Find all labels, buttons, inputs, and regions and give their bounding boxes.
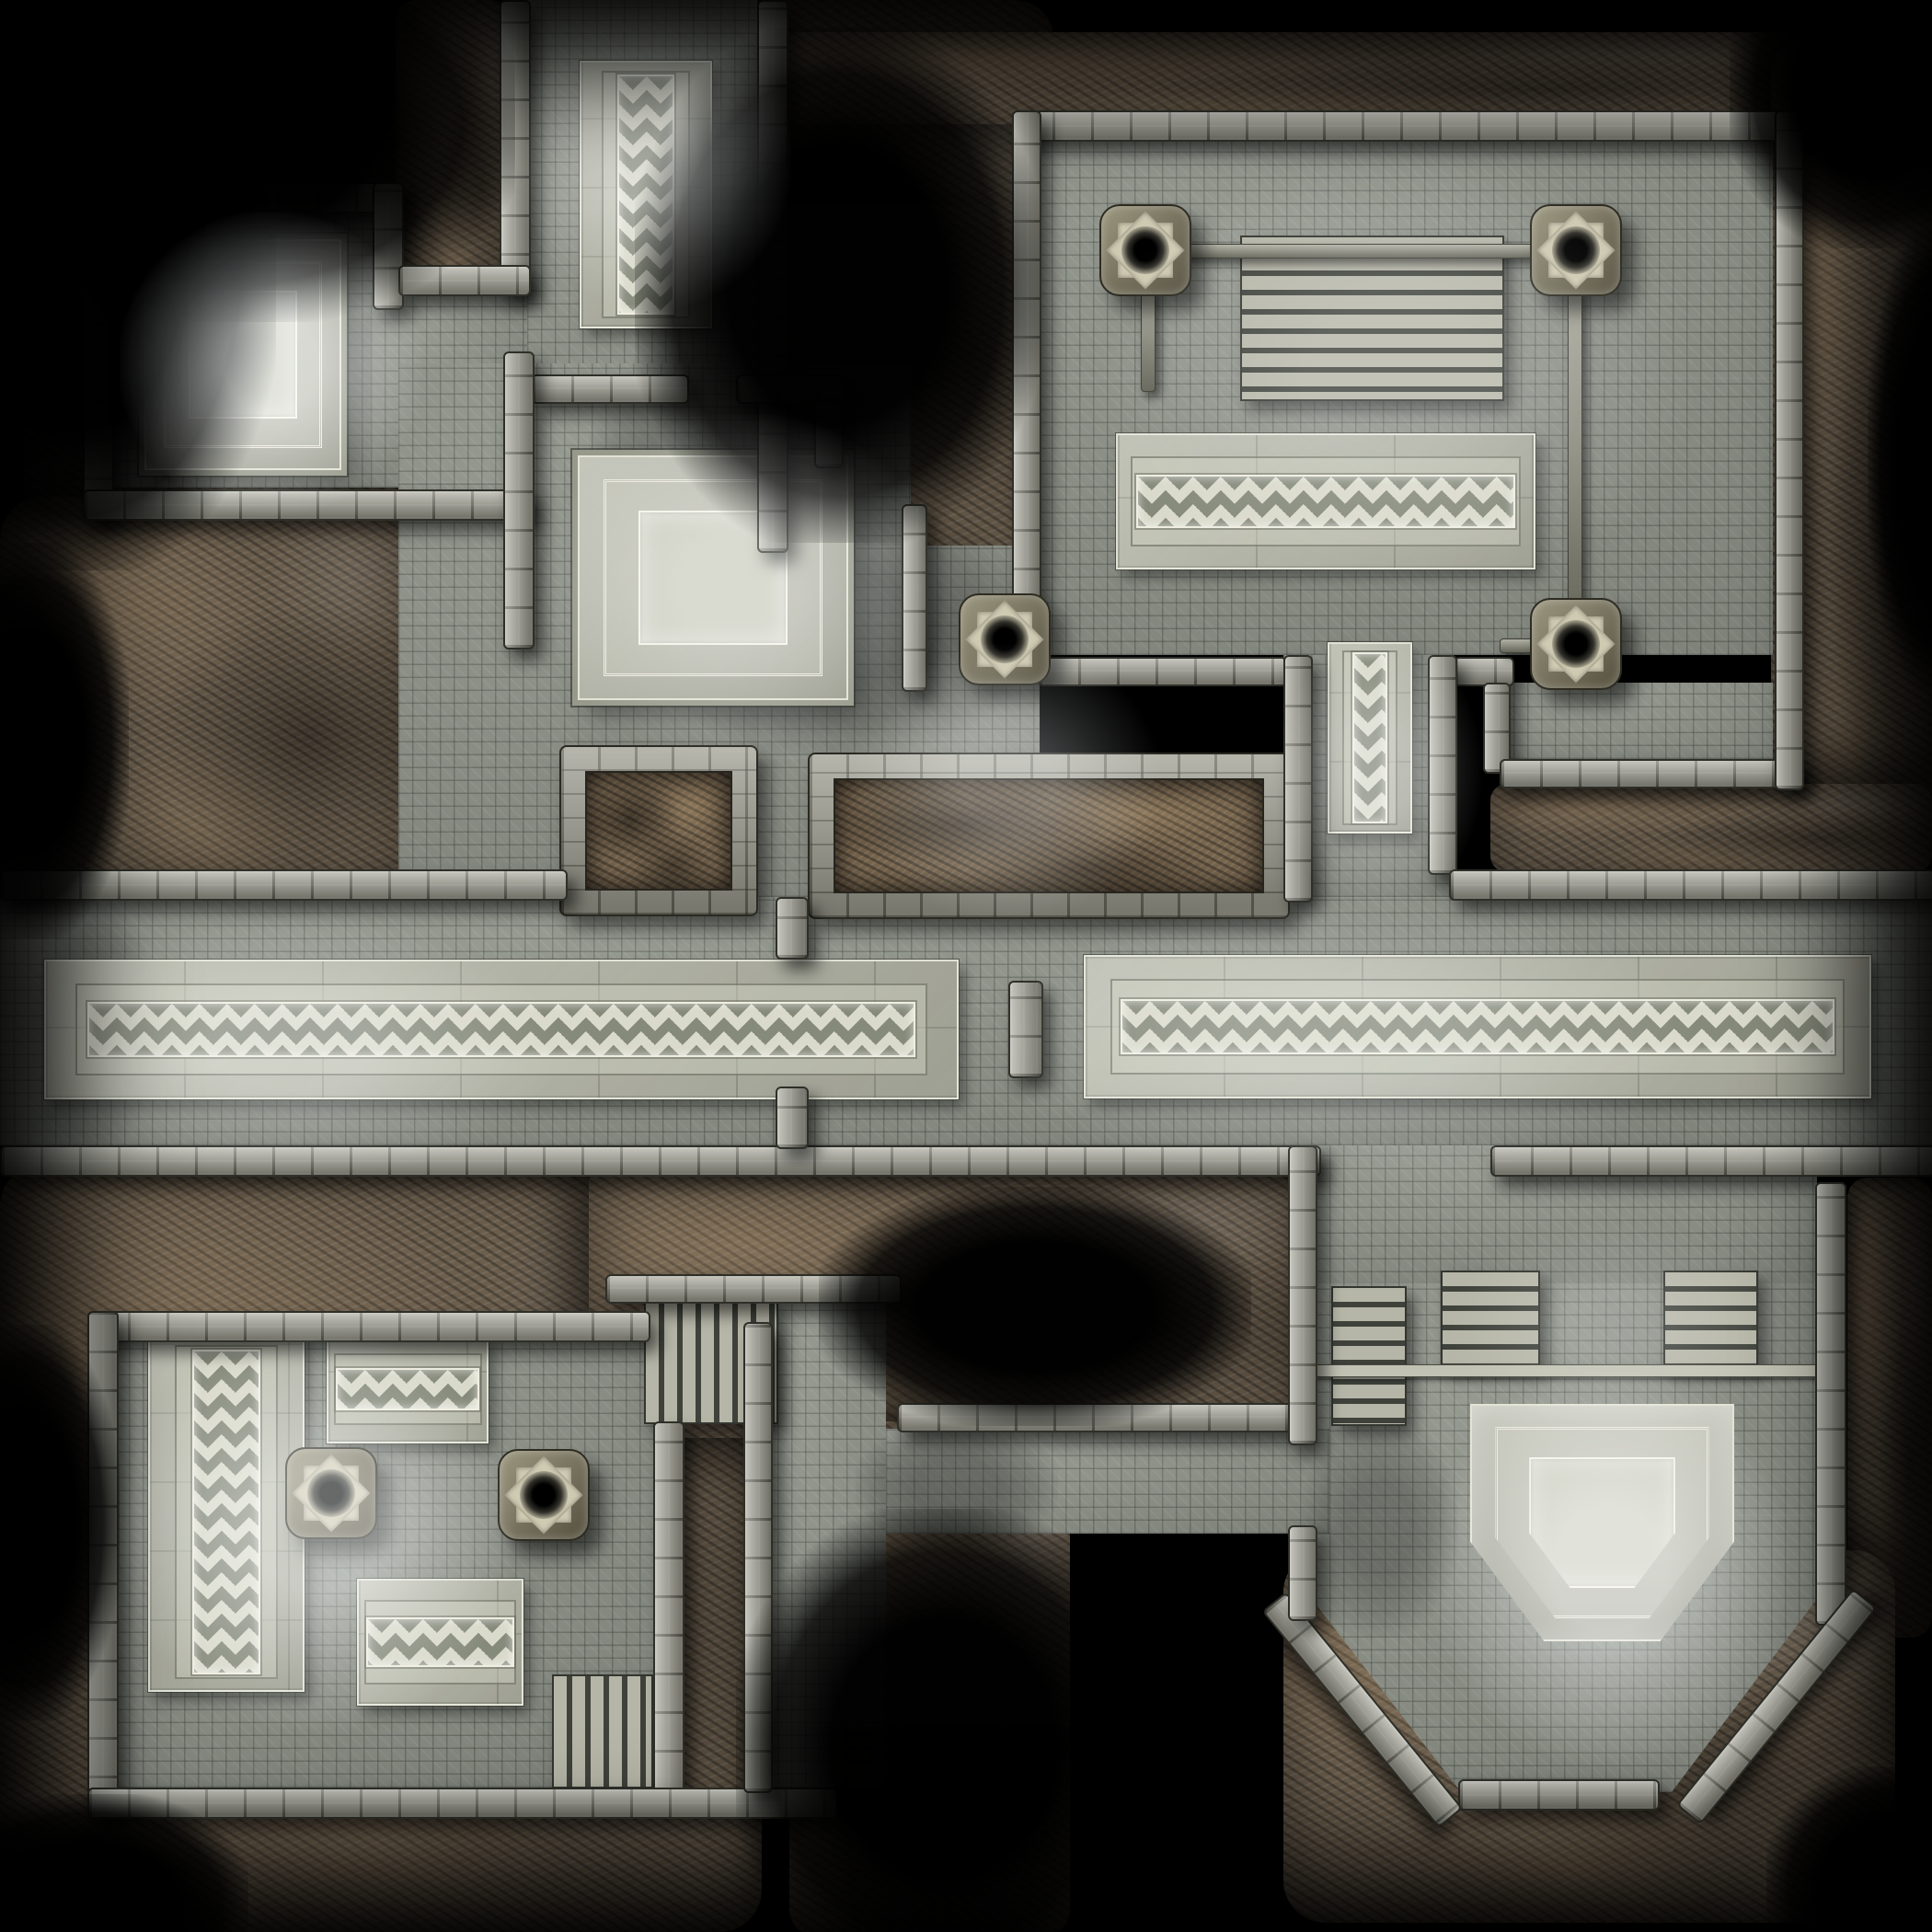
wall-junction-east bbox=[902, 504, 927, 692]
rug-room-topright-pattern bbox=[1136, 475, 1514, 528]
pit-center-rock bbox=[834, 778, 1264, 893]
wall-topright-west bbox=[1012, 110, 1041, 611]
wall-bottomright-west-lower bbox=[1288, 1525, 1317, 1621]
floor-room-topright-lower bbox=[1500, 683, 1773, 759]
wall-centerleft-north-west bbox=[531, 374, 689, 404]
dungeon-map[interactable] bbox=[0, 0, 1932, 1932]
stairs-bottomright-east bbox=[1663, 1271, 1758, 1368]
wall-pit-low-south bbox=[897, 1403, 1294, 1432]
rug-bottomleft-south-pattern bbox=[366, 1617, 514, 1667]
pillar-bottomleft-east bbox=[498, 1449, 590, 1541]
stairs-bottomleft-corner bbox=[552, 1674, 653, 1788]
pillar-topright-ne-brazier-icon bbox=[1552, 226, 1600, 274]
floor-corridor-south bbox=[764, 1300, 886, 1788]
pillar-bottomleft-west bbox=[285, 1447, 377, 1539]
pillar-topright-nw-brazier-icon bbox=[1121, 226, 1169, 274]
pillar-junction-brazier-icon bbox=[981, 615, 1029, 663]
wall-pit-low-east bbox=[1288, 1145, 1317, 1445]
rug-bottomleft-north-pattern bbox=[336, 1368, 480, 1410]
wall-topright-north bbox=[1012, 110, 1804, 142]
wall-corridor-top-east bbox=[757, 0, 788, 553]
wall-corridor-top-west bbox=[500, 0, 531, 296]
dais-room-centerleft bbox=[578, 455, 848, 700]
pillar-bottomleft-east-brazier-icon bbox=[520, 1471, 568, 1519]
pillar-topright-se bbox=[1530, 598, 1622, 690]
rug-room-bottomleft bbox=[148, 1332, 305, 1692]
wall-topright-south-west bbox=[1038, 657, 1287, 686]
pit-west-rock bbox=[585, 771, 732, 891]
wall-corridor-main-south bbox=[0, 1145, 1321, 1177]
wall-corridor-top-stub bbox=[398, 265, 531, 296]
wall-appendix-east bbox=[1428, 655, 1457, 875]
pillar-topright-nw bbox=[1099, 204, 1191, 296]
wall-bottomleft-west bbox=[87, 1311, 119, 1819]
ledge-bottomright-tier bbox=[1316, 1364, 1819, 1377]
wall-corridor-door-north bbox=[776, 897, 809, 960]
wall-centerleft-west bbox=[503, 351, 535, 650]
rug-corridor-main-west-pattern bbox=[87, 1002, 916, 1056]
wall-bottomright-east bbox=[1815, 1182, 1846, 1626]
wall-corridor-main-north-west bbox=[0, 869, 568, 901]
rug-bottomleft-north bbox=[327, 1335, 489, 1443]
stairs-bottomright-west bbox=[1331, 1286, 1407, 1426]
rug-room-bottomleft-pattern bbox=[192, 1350, 259, 1673]
rug-appendix-pattern bbox=[1352, 652, 1388, 823]
rug-room-topright bbox=[1116, 433, 1535, 569]
pillar-bottomleft-west-brazier-icon bbox=[307, 1469, 355, 1517]
rug-corridor-top bbox=[580, 61, 712, 328]
wall-bottomright-south bbox=[1458, 1779, 1660, 1811]
pit-center bbox=[808, 753, 1290, 919]
railing-topright-north bbox=[1145, 244, 1580, 259]
wall-bottomleft-east bbox=[653, 1421, 684, 1793]
wall-corridor-south-west bbox=[743, 1322, 773, 1793]
wall-topleft-west bbox=[83, 182, 114, 521]
rug-corridor-main-west bbox=[44, 960, 959, 1099]
rug-corridor-main-east bbox=[1084, 955, 1871, 1098]
floor-passage-east bbox=[886, 1429, 1329, 1534]
wall-appendix-west bbox=[1283, 655, 1313, 903]
rock-left-mid bbox=[0, 497, 414, 883]
rug-appendix bbox=[1328, 642, 1412, 834]
pillar-junction bbox=[959, 593, 1051, 685]
stairs-bottomright-mid bbox=[1441, 1271, 1540, 1368]
wall-corridor-main-south-east bbox=[1490, 1145, 1932, 1177]
pit-west bbox=[559, 745, 758, 916]
stairs-room-topright bbox=[1240, 236, 1504, 401]
wall-corridor-mid-post bbox=[1008, 981, 1043, 1078]
dais-room-topleft-top bbox=[189, 291, 297, 418]
railing-topright-west bbox=[1141, 287, 1156, 392]
rug-corridor-top-pattern bbox=[617, 75, 674, 315]
rock-top-corridor-west bbox=[396, 0, 511, 304]
wall-bottomleft-south bbox=[87, 1788, 838, 1819]
rock-mid-strip-east bbox=[1490, 784, 1932, 872]
wall-centerleft-return bbox=[814, 400, 844, 468]
wall-corridor-main-north-east bbox=[1449, 869, 1932, 901]
rug-corridor-main-east-pattern bbox=[1121, 999, 1834, 1055]
dais-room-topleft bbox=[144, 239, 341, 470]
wall-pit-low-west bbox=[605, 1274, 902, 1304]
rug-bottomleft-south bbox=[357, 1579, 523, 1706]
wall-topleft-north bbox=[83, 182, 404, 213]
wall-topleft-south bbox=[83, 489, 533, 521]
railing-topright-east bbox=[1568, 250, 1582, 648]
wall-corridor-door-south bbox=[776, 1087, 809, 1149]
pillar-topright-se-brazier-icon bbox=[1552, 620, 1600, 668]
wall-bottomleft-north bbox=[87, 1311, 650, 1342]
wall-topright-east bbox=[1775, 110, 1804, 790]
wall-topright-south-east bbox=[1500, 759, 1804, 788]
pillar-topright-ne bbox=[1530, 204, 1622, 296]
